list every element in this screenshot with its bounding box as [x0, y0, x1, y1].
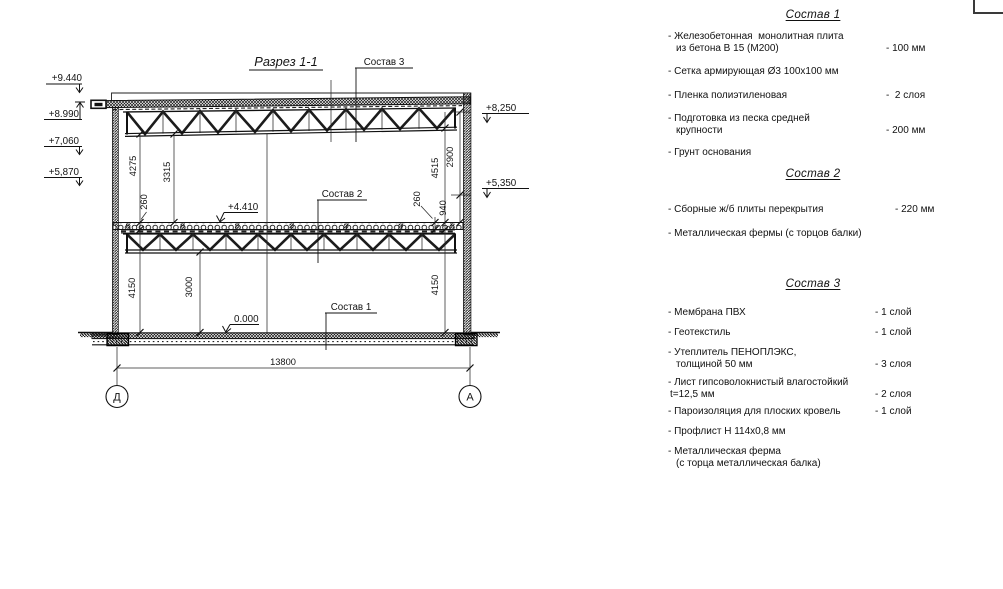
dim-3315: 3315: [162, 162, 172, 183]
legend-item: - Лист гипсоволокнистый влагостойкийt=12…: [668, 377, 968, 402]
svg-text:+8,250: +8,250: [486, 103, 517, 114]
legend-section-title: Состав 1: [663, 8, 963, 21]
item-text: - Утеплитель ПЕНОПЛЭКС,: [668, 347, 968, 359]
svg-text:+4.410: +4.410: [228, 202, 259, 213]
legend-item: - Пароизоляция для плоских кровель - 1 с…: [668, 406, 968, 418]
level-7060: +7,060: [44, 136, 83, 155]
level-5870: +5,870: [44, 167, 83, 186]
dim-940: 940: [438, 200, 448, 216]
item-value: - 220 мм: [895, 204, 934, 216]
item-text: - Железобетонная монолитная плита: [668, 31, 968, 43]
foundation-left: [107, 334, 129, 346]
dim-4150-right: 4150: [430, 275, 440, 296]
legend-section-title: Состав 2: [663, 167, 963, 180]
legend-section-title: Состав 3: [663, 277, 963, 290]
level-0000: 0.000: [223, 314, 260, 333]
item-text: - Геотекстиль: [668, 327, 968, 339]
dim-3000: 3000: [184, 277, 194, 298]
level-8990: +8.990: [44, 102, 85, 120]
dim-13800: 13800: [270, 357, 296, 367]
svg-text:+5,870: +5,870: [49, 167, 80, 178]
floor-slab-on-grade: [92, 333, 474, 339]
item-value: - 100 мм: [886, 43, 925, 55]
item-text: - Подготовка из песка средней: [668, 113, 968, 125]
item-text: - Металлическая ферма: [668, 446, 968, 458]
dim-2900: 2900: [445, 147, 455, 168]
item-value: - 2 слоя: [875, 389, 911, 401]
dim-4515: 4515: [430, 158, 440, 179]
drawing-title: Разрез 1-1: [254, 54, 317, 69]
left-wall: [113, 108, 119, 335]
legend-item: - Профлист Н 114х0,8 мм: [668, 426, 968, 438]
svg-text:+9.440: +9.440: [52, 73, 83, 84]
legend-item: - Сетка армирующая Ø3 100х100 мм: [668, 66, 968, 78]
legend-item: - Грунт основания: [668, 147, 968, 159]
item-value: - 200 мм: [886, 125, 925, 137]
drawing-sheet: 4275 3315 260 4150 3000 4515 2900 260 94…: [0, 0, 1003, 584]
item-value: - 3 слоя: [875, 359, 911, 371]
dim-4150-left: 4150: [127, 278, 137, 299]
svg-text:0.000: 0.000: [234, 314, 259, 325]
item-text: - Лист гипсоволокнистый влагостойкий: [668, 377, 968, 389]
axes: Д А: [106, 386, 481, 408]
legend-item: - Металлическая ферма(с торца металличес…: [668, 446, 968, 471]
legend-item: - Мембрана ПВХ - 1 слой: [668, 307, 968, 319]
item-value: - 1 слой: [875, 406, 912, 418]
legend-item: - Металлическая фермы (с торцов балки): [668, 228, 968, 240]
item-text: толщиной 50 мм: [668, 359, 968, 371]
item-text: - Металлическая фермы (с торцов балки): [668, 228, 968, 240]
item-text: - Сетка армирующая Ø3 100х100 мм: [668, 66, 968, 78]
level-5350: +5,350: [482, 178, 529, 198]
legend-item: - Железобетонная монолитная плитаиз бето…: [668, 31, 968, 56]
svg-text:+7,060: +7,060: [49, 136, 80, 147]
dim-4275: 4275: [128, 156, 138, 177]
right-wall: [464, 93, 471, 335]
legend-item: - Пленка полиэтиленовая - 2 слоя: [668, 90, 968, 102]
legend-item: - Подготовка из песка среднейкрупности -…: [668, 113, 968, 138]
item-text: - Мембрана ПВХ: [668, 307, 968, 319]
roof-assembly: [91, 93, 471, 136]
legend-item: - Геотекстиль - 1 слой: [668, 327, 968, 339]
item-text: (с торца металлическая балка): [668, 458, 968, 470]
legend-item: - Сборные ж/б плиты перекрытия - 220 мм: [668, 204, 968, 216]
parapet-cap-core: [95, 103, 103, 106]
dim-260-left: 260: [139, 194, 149, 210]
sheet-frame-corner: [973, 0, 1003, 14]
roof-slab: [92, 97, 470, 108]
svg-text:+8.990: +8.990: [49, 109, 80, 120]
item-text: - Профлист Н 114х0,8 мм: [668, 426, 968, 438]
legend-item: - Утеплитель ПЕНОПЛЭКС,толщиной 50 мм - …: [668, 347, 968, 372]
svg-text:Состав 2: Состав 2: [322, 189, 363, 200]
foundation-right: [456, 334, 478, 346]
level-4410: +4.410: [217, 202, 259, 222]
axis-letter-right: А: [466, 392, 474, 404]
section-drawing: 4275 3315 260 4150 3000 4515 2900 260 94…: [0, 0, 1003, 584]
svg-text:+5,350: +5,350: [486, 178, 517, 189]
item-text: t=12,5 мм: [668, 389, 968, 401]
svg-text:Состав 3: Состав 3: [364, 57, 405, 68]
floor-assembly: [113, 223, 463, 254]
dim-260-right: 260: [412, 191, 422, 207]
level-9440: +9.440: [46, 73, 83, 93]
item-text: - Грунт основания: [668, 147, 968, 159]
ground-slab: [78, 333, 500, 346]
callout-sostav1: Состав 1: [325, 302, 377, 350]
item-value: - 1 слой: [875, 307, 912, 319]
item-value: - 1 слой: [875, 327, 912, 339]
hollow-core-slab: [113, 223, 463, 230]
axis-letter-left: Д: [113, 392, 121, 404]
svg-text:Состав 1: Состав 1: [331, 302, 372, 313]
item-value: - 2 слоя: [886, 90, 925, 102]
item-text: - Пароизоляция для плоских кровель: [668, 406, 968, 418]
level-8250: +8,250: [482, 103, 529, 123]
dimensions: 4275 3315 260 4150 3000 4515 2900 260 94…: [114, 80, 474, 385]
